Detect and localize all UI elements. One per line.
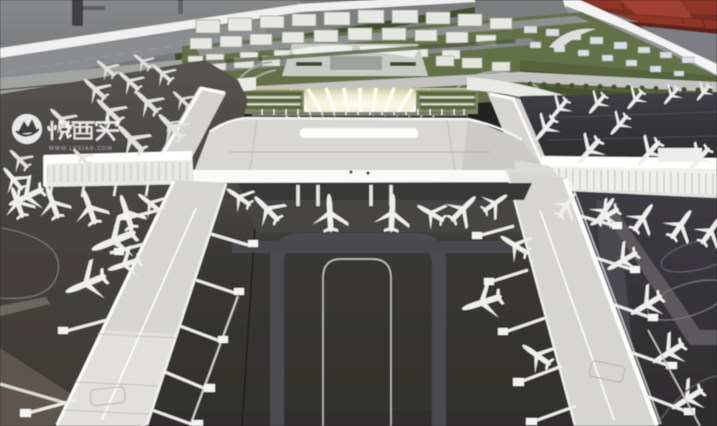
svg-text:WWW.LVXIAN.COM: WWW.LVXIAN.COM: [49, 146, 113, 152]
